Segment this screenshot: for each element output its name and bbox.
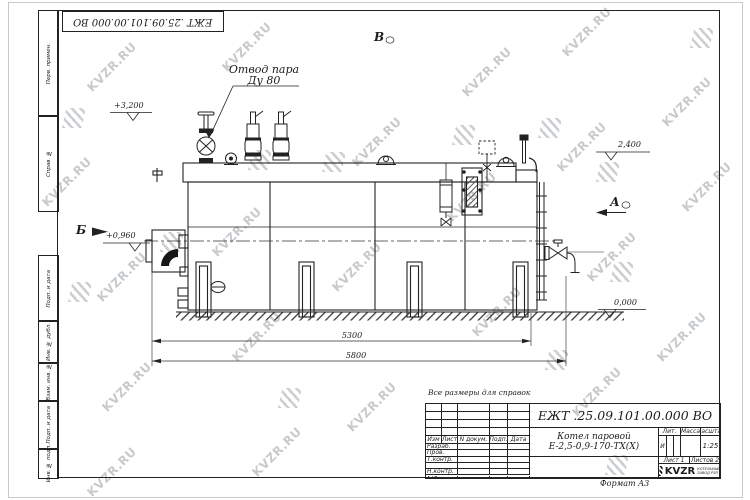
support-legs bbox=[196, 262, 528, 317]
rev-cell bbox=[508, 404, 530, 412]
rev-cell bbox=[490, 412, 508, 420]
kvzr-logo-icon bbox=[659, 466, 663, 476]
margin-label: Подп. и дата bbox=[46, 406, 52, 443]
safety-valve-1 bbox=[245, 111, 263, 160]
margin-label: Подп. и дата bbox=[46, 270, 52, 307]
org-cell bbox=[530, 457, 659, 479]
format-label: Формат А3 bbox=[600, 479, 649, 488]
rev-cell bbox=[458, 404, 490, 412]
margin-label: Инв. № дубл. bbox=[46, 323, 52, 361]
rev-cell bbox=[458, 428, 490, 436]
rev-cell bbox=[458, 420, 490, 428]
dim-5300: 5300 bbox=[342, 331, 362, 340]
company-name: KVZR bbox=[665, 466, 695, 477]
manhole-oval bbox=[211, 282, 225, 293]
rev-cell bbox=[442, 404, 458, 412]
lit-label: Лит. bbox=[659, 428, 681, 436]
elevation-0000: 0,000 bbox=[614, 298, 637, 307]
margin-label: Справ. № bbox=[46, 150, 52, 177]
rev-cell bbox=[490, 420, 508, 428]
col-header-podp: Подп. bbox=[490, 436, 508, 444]
dim-5800: 5800 bbox=[346, 351, 366, 360]
rev-cell bbox=[442, 428, 458, 436]
rev-cell bbox=[508, 420, 530, 428]
hidden-fitting bbox=[479, 141, 495, 182]
mass-value bbox=[681, 436, 701, 457]
company-sub2: ЗАВОД РЭП bbox=[697, 471, 720, 475]
view-sheet-ref-circle bbox=[386, 37, 394, 43]
rev-cell bbox=[442, 420, 458, 428]
rev-cell bbox=[490, 404, 508, 412]
dimension-lines bbox=[152, 246, 566, 366]
margin-label: Инв. № подл. bbox=[46, 444, 52, 482]
col-header-izm: Изм bbox=[426, 436, 442, 444]
margin-box-inv-podl: Инв. № подл. bbox=[38, 448, 59, 479]
elevation-2400: 2,400 bbox=[617, 140, 641, 149]
margin-label: Перв. примен. bbox=[46, 43, 52, 84]
scale-value: 1:25 bbox=[701, 436, 721, 457]
margin-box-podp-data-2: Подп. и дата bbox=[38, 400, 59, 450]
drawing-sheet: KVZR.RU KVZR.RU KVZR.RU KVZR.RU KVZR.RU … bbox=[0, 0, 750, 500]
top-designation-stamp: ЕЖТ .25.09.101.00.000 ВО bbox=[62, 11, 224, 32]
rev-cell bbox=[490, 428, 508, 436]
boiler-body bbox=[183, 163, 537, 310]
steam-valve bbox=[197, 112, 215, 162]
burner-flame-symbol bbox=[161, 249, 178, 266]
instrument-fitting bbox=[520, 135, 536, 172]
col-header-list: Лист bbox=[442, 436, 458, 444]
lit-cell bbox=[667, 436, 674, 457]
rev-cell bbox=[458, 412, 490, 420]
elevation-marks bbox=[103, 113, 650, 318]
margin-box-inv-dubl: Инв. № дубл. bbox=[38, 320, 59, 364]
rev-cell bbox=[426, 412, 442, 420]
safety-valve-2 bbox=[273, 111, 291, 160]
margin-box-sprav-no: Справ. № bbox=[38, 115, 59, 212]
dome-fitting-right bbox=[496, 157, 516, 166]
sign-cell bbox=[490, 476, 508, 480]
titleblock-designation: ЕЖТ .25.09.101.00.000 ВО bbox=[530, 404, 721, 428]
sheet-number: Лист 1 bbox=[659, 457, 690, 464]
lit-cell bbox=[674, 436, 681, 457]
product-name-line1: Котел паровой bbox=[557, 432, 631, 442]
product-name-line2: Е-2,5-0,9-170-ТХ(Х) bbox=[549, 442, 639, 452]
col-header-date: Дата bbox=[508, 436, 530, 444]
elevation-0960: +0,960 bbox=[106, 231, 136, 240]
sheets-total: Листов 2 bbox=[690, 457, 721, 464]
scale-label: Масштаб bbox=[701, 428, 721, 436]
ground-hatch bbox=[176, 312, 624, 321]
rev-cell bbox=[426, 428, 442, 436]
reference-note: Все размеры для справок bbox=[428, 388, 530, 397]
view-a-arrow bbox=[596, 209, 626, 216]
margin-box-podp-data-1: Подп. и дата bbox=[38, 255, 59, 322]
mass-label: Масса bbox=[681, 428, 701, 436]
rev-cell bbox=[508, 428, 530, 436]
view-label-b-top: В bbox=[373, 30, 384, 44]
view-label-a: А bbox=[609, 195, 620, 209]
col-header-doc: N докум. bbox=[458, 436, 490, 444]
elevation-3200: +3,200 bbox=[114, 101, 144, 110]
sign-utv: Утв. bbox=[426, 476, 458, 480]
lit-value: И bbox=[659, 436, 667, 457]
rev-cell bbox=[442, 412, 458, 420]
water-gauge-column bbox=[440, 163, 452, 226]
rev-cell bbox=[508, 412, 530, 420]
rev-cell bbox=[426, 404, 442, 412]
margin-label: Взам. инв. № bbox=[46, 363, 52, 401]
blowdown-valve bbox=[545, 240, 604, 273]
title-block: Изм Лист N докум. Подп. Дата Разраб. Про… bbox=[425, 403, 721, 479]
view-sheet-ref-circle bbox=[622, 202, 630, 208]
steam-outlet-label-2: Ду 80 bbox=[247, 74, 281, 87]
rev-cell bbox=[426, 420, 442, 428]
view-label-b-left: Б bbox=[75, 223, 86, 237]
company-cell: KVZR КОТЕЛЬНЫЙ ЗАВОД РЭП bbox=[659, 464, 721, 479]
margin-box-vzam-inv: Взам. инв. № bbox=[38, 362, 59, 402]
sign-cell bbox=[508, 476, 530, 480]
margin-box-perv-primen: Перв. примен. bbox=[38, 10, 59, 117]
designation-flipped: ЕЖТ .25.09.101.00.000 ВО bbox=[73, 16, 212, 27]
sign-cell bbox=[458, 476, 490, 480]
